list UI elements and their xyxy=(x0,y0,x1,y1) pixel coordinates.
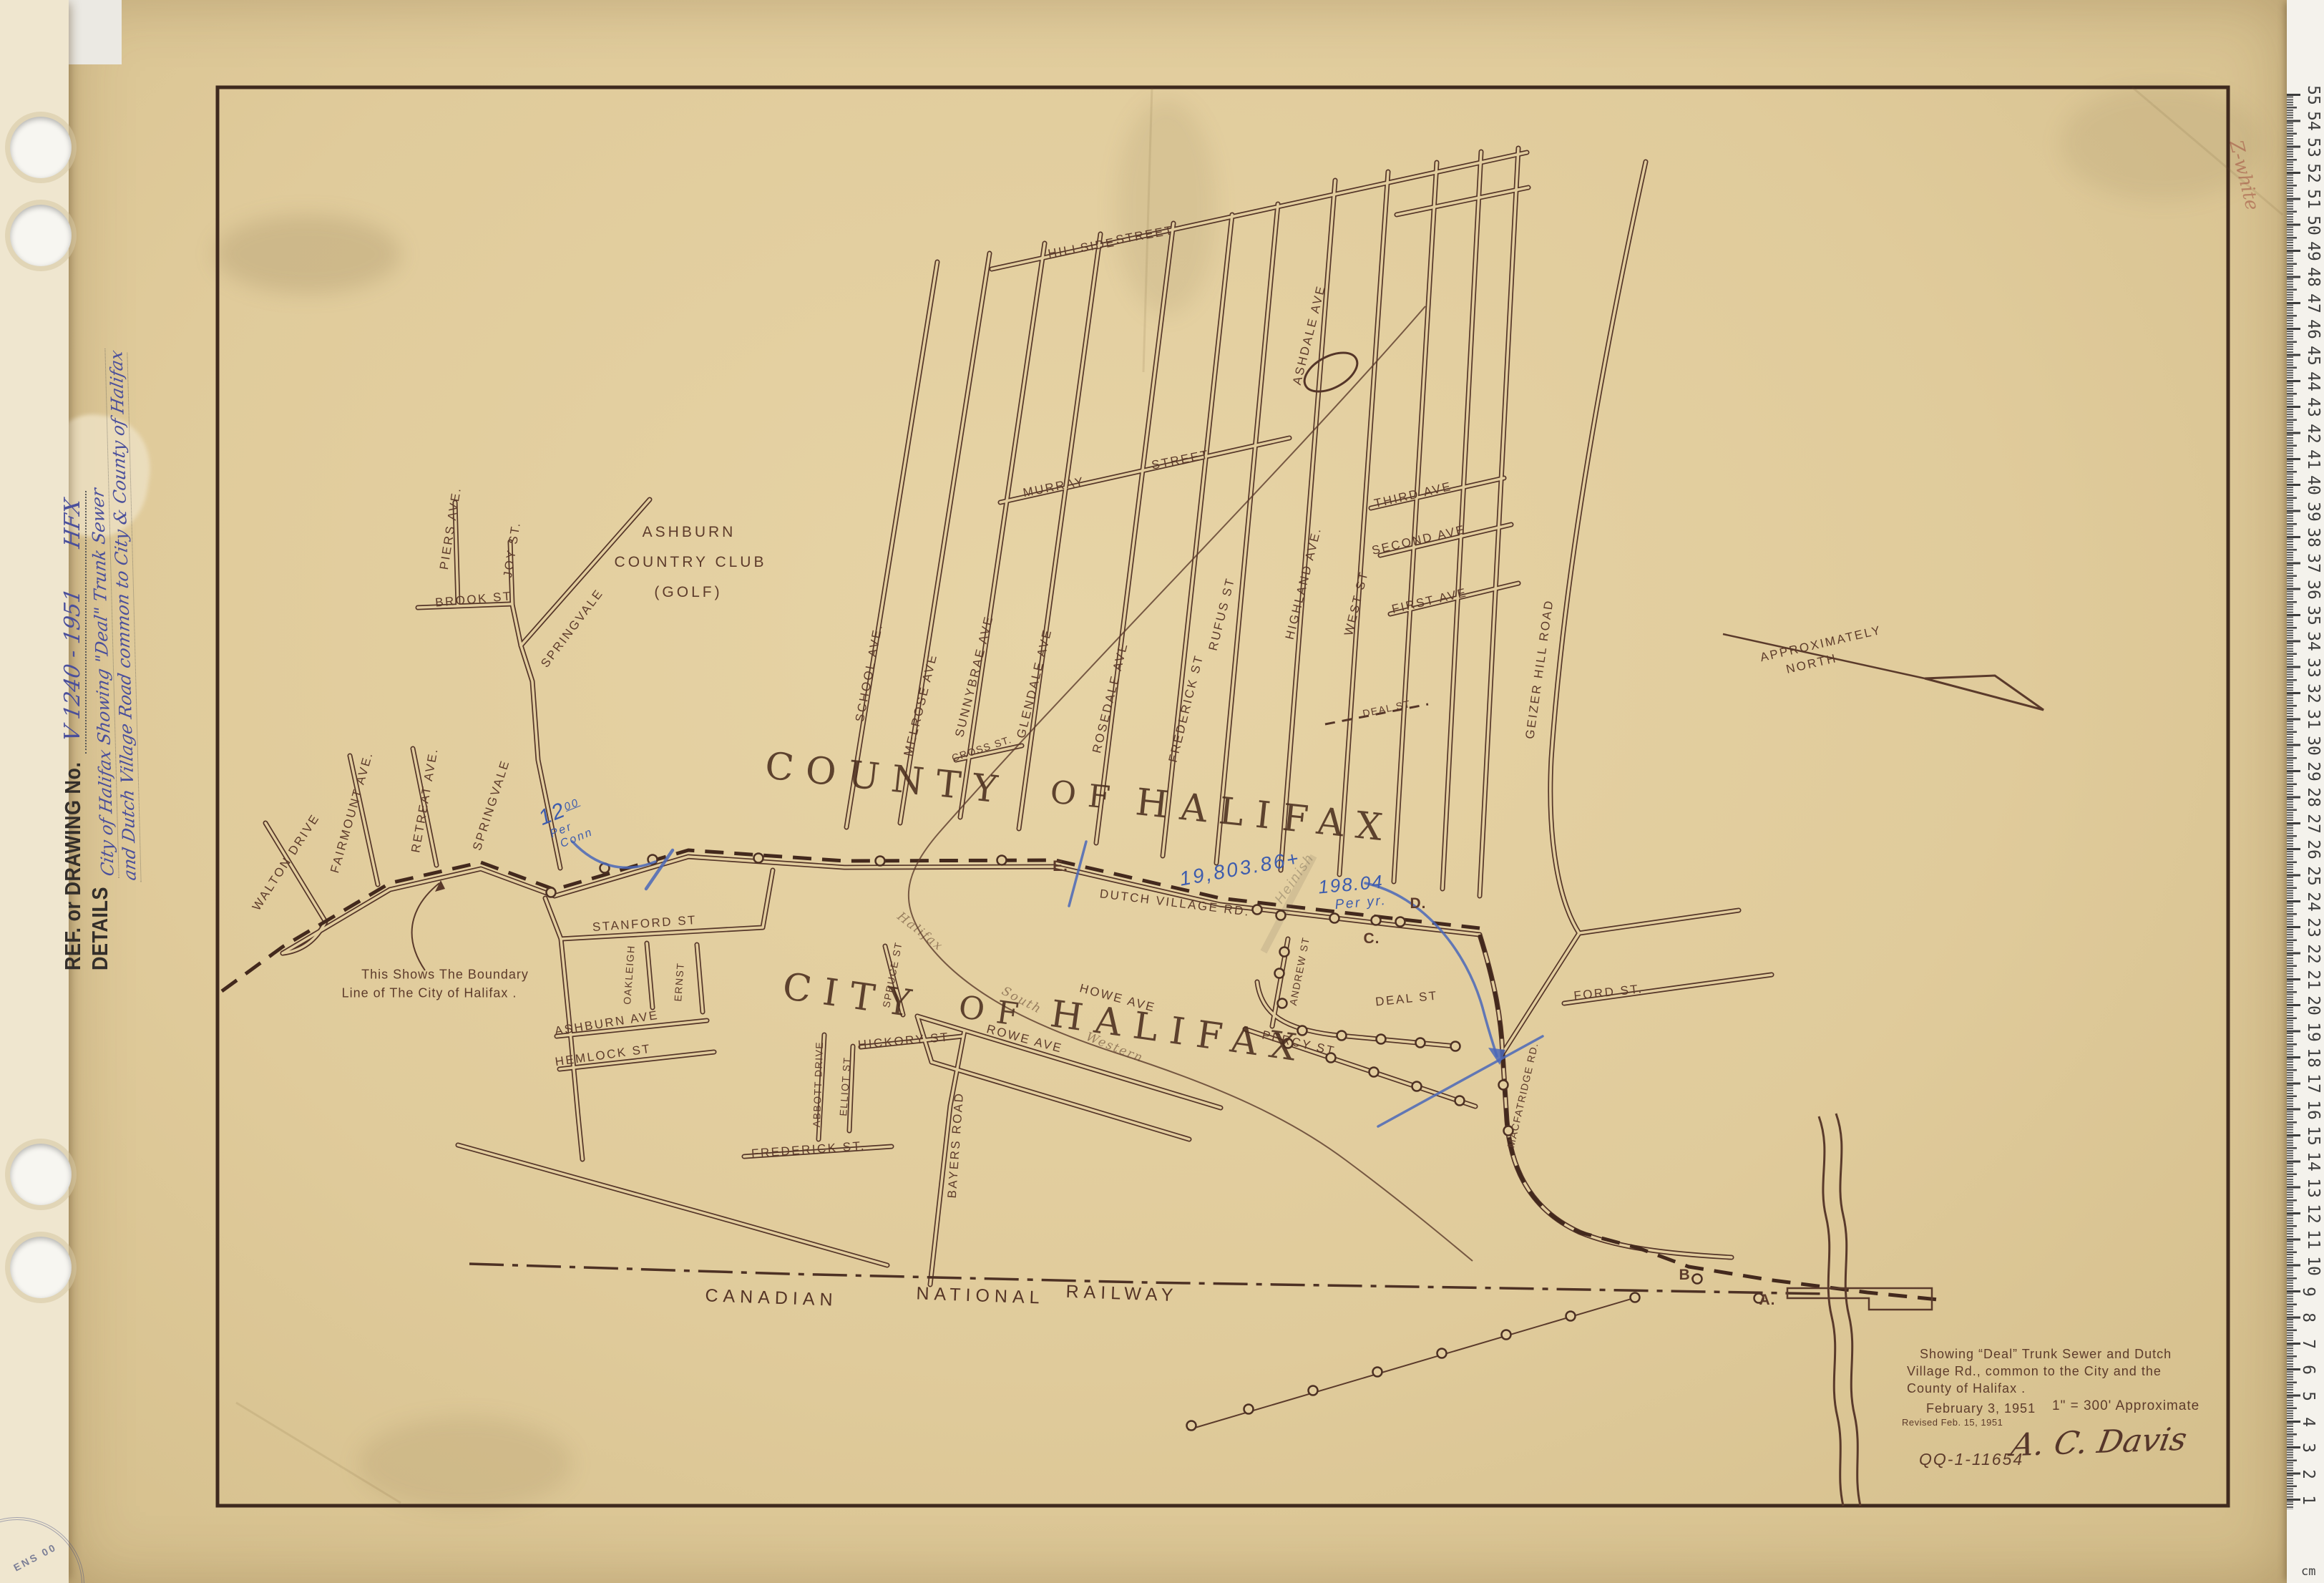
details-value: City of Halifax Showing "Deal" Trunk Sew… xyxy=(83,344,141,882)
ruler-number: 5 xyxy=(2299,1391,2318,1401)
ruler-number: 42 xyxy=(2304,424,2323,444)
road-geizer-hill xyxy=(1551,162,1646,933)
details-label: DETAILS xyxy=(88,887,113,970)
ruler-number: 13 xyxy=(2304,1178,2323,1198)
ruler-number: 16 xyxy=(2304,1100,2323,1120)
ruler-unit-label: cm xyxy=(2301,1564,2315,1579)
road-highland xyxy=(1281,180,1335,870)
ruler-number: 30 xyxy=(2304,736,2323,756)
ruler-number: 8 xyxy=(2299,1313,2318,1323)
golf-club-line1: ASHBURN xyxy=(643,524,736,541)
ruler-number: 33 xyxy=(2304,658,2323,678)
blue-per-conn-cents: 00 xyxy=(562,797,581,814)
title-block: Showing “Deal” Trunk Sewer and Dutch Vil… xyxy=(1907,1345,2172,1397)
road-rowe-ave xyxy=(932,1062,1189,1139)
point-label-d: D. xyxy=(1410,895,1427,912)
title-signature: A. C. Davis xyxy=(2008,1421,2190,1463)
ruler-number: 3 xyxy=(2299,1443,2318,1453)
blue-leader xyxy=(572,842,655,867)
ref-label: REF. or DRAWING No. xyxy=(61,762,86,971)
punch-hole xyxy=(10,205,72,266)
boundary-note-line2: Line of The City of Halifax . xyxy=(342,986,517,1001)
road-grid-12 xyxy=(1480,148,1518,896)
ruler-strip: cm 5554535251504948474645444342414039383… xyxy=(2287,0,2324,1583)
road-geizer-east xyxy=(1579,910,1739,933)
ruler-number: 17 xyxy=(2304,1073,2323,1094)
scanned-map-page: HILLSIDE STREET MURRAY STREET SCHOOL AVE… xyxy=(0,0,2324,1583)
details-row: DETAILS City of Halifax Showing "Deal" T… xyxy=(89,326,135,970)
trunk-sewer-dashed xyxy=(1480,935,1938,1300)
ruler-number: 29 xyxy=(2304,761,2323,781)
cn-railway-word2: NATIONAL xyxy=(916,1283,1045,1308)
point-label-b: B. xyxy=(1679,1267,1696,1284)
ruler-number: 22 xyxy=(2304,944,2323,964)
punch-hole xyxy=(10,117,72,178)
ruler-number: 50 xyxy=(2304,215,2323,235)
blue-arrow-curve xyxy=(1365,883,1497,1056)
road-school-ave xyxy=(846,262,937,827)
road-rufus xyxy=(1216,204,1278,863)
ruler-number: 52 xyxy=(2304,163,2323,183)
ruler-number: 18 xyxy=(2304,1048,2323,1068)
ruler-number: 39 xyxy=(2304,502,2323,522)
ruler-number: 12 xyxy=(2304,1204,2323,1224)
ruler-number: 4 xyxy=(2299,1417,2318,1427)
road-to-railway xyxy=(458,1145,887,1265)
ruler-number: 40 xyxy=(2304,475,2323,495)
ruler-number: 6 xyxy=(2299,1365,2318,1375)
ruler-number: 53 xyxy=(2304,137,2323,157)
boundary-note-line1: This Shows The Boundary xyxy=(361,968,529,983)
ruler-number: 28 xyxy=(2304,788,2323,808)
ruler-number: 46 xyxy=(2304,319,2323,339)
ruler-number: 35 xyxy=(2304,605,2323,625)
boundary-note-leader xyxy=(412,883,439,970)
road-ashdale xyxy=(1442,152,1481,889)
blue-ink-marks xyxy=(572,842,1543,1126)
golf-club-line3: (GOLF) xyxy=(654,584,722,601)
road-top-right-cross xyxy=(1397,187,1528,215)
ruler-number: 31 xyxy=(2304,710,2323,730)
manholes xyxy=(547,854,1764,1431)
road-rosedale xyxy=(1096,223,1173,843)
ruler-number: 23 xyxy=(2304,917,2323,937)
ruler-number: 51 xyxy=(2304,190,2323,210)
region-county-word2: OF xyxy=(1048,774,1123,817)
title-scale: 1" = 300' Approximate xyxy=(2052,1398,2199,1414)
ruler-number: 1 xyxy=(2299,1495,2318,1505)
title-file-number: QQ-1-11654 xyxy=(1919,1450,2023,1469)
ruler-number: 19 xyxy=(2304,1022,2323,1042)
road-macfatridge-diag xyxy=(1503,933,1579,1053)
ruler-number: 38 xyxy=(2304,527,2323,547)
ruler-number: 49 xyxy=(2304,241,2323,261)
ruler-number: 45 xyxy=(2304,346,2323,366)
ruler-number: 48 xyxy=(2304,268,2323,288)
cn-railway-word3: RAILWAY xyxy=(1065,1282,1178,1306)
binder-vertical-text: REF. or DRAWING No. V 1240 - 1951 HFX DE… xyxy=(60,326,135,970)
ref-value: V 1240 - 1951 HFX xyxy=(60,487,87,754)
punch-hole xyxy=(10,1144,72,1205)
ruler-number: 34 xyxy=(2304,631,2323,651)
ruler-number: 2 xyxy=(2299,1469,2318,1479)
point-label-c: C. xyxy=(1364,930,1380,948)
ruler-number: 26 xyxy=(2304,839,2323,859)
ruler-cm-ticks xyxy=(2287,94,2300,1509)
stream-west-bank xyxy=(1819,1116,1843,1506)
road-grid-10 xyxy=(1394,162,1437,882)
ruler-number: 43 xyxy=(2304,397,2323,417)
ruler-number: 10 xyxy=(2304,1256,2323,1276)
ruler-number: 55 xyxy=(2304,85,2323,105)
title-date: February 3, 1951 xyxy=(1926,1401,2036,1416)
title-revised: Revised Feb. 15, 1951 xyxy=(1902,1417,2003,1428)
ruler-number: 36 xyxy=(2304,580,2323,600)
title-line2: Village Rd., common to the City and the xyxy=(1907,1363,2172,1380)
ref-row: REF. or DRAWING No. V 1240 - 1951 HFX xyxy=(60,326,87,970)
ruler-number: 44 xyxy=(2304,371,2323,391)
road-west-st xyxy=(1339,172,1388,875)
ruler-number: 21 xyxy=(2304,970,2323,990)
ruler-number: 41 xyxy=(2304,449,2323,469)
ruler-number: 15 xyxy=(2304,1126,2323,1146)
ruler-number: 9 xyxy=(2299,1287,2318,1297)
road-springvale-upper xyxy=(521,500,650,646)
point-label-a: A. xyxy=(1759,1292,1776,1309)
ruler-number: 7 xyxy=(2299,1339,2318,1349)
point-label-e: E. xyxy=(1053,858,1068,875)
ruler-number: 27 xyxy=(2304,814,2323,834)
boundary-and-rail xyxy=(222,306,2044,1506)
ruler-number: 24 xyxy=(2304,892,2323,912)
ruler-number: 37 xyxy=(2304,553,2323,573)
ruler-number: 47 xyxy=(2304,293,2323,313)
road-geizer-hill xyxy=(1551,162,1646,933)
ruler-number: 14 xyxy=(2304,1151,2323,1172)
title-line3: County of Halifax . xyxy=(1907,1380,2172,1397)
golf-club-line2: COUNTRY CLUB xyxy=(615,554,767,571)
punch-hole xyxy=(10,1237,72,1298)
ruler-number: 25 xyxy=(2304,866,2323,886)
ruler-number: 11 xyxy=(2304,1230,2323,1250)
title-line1: Showing “Deal” Trunk Sewer and Dutch xyxy=(1920,1345,2172,1363)
ruler-number: 20 xyxy=(2304,995,2323,1015)
ruler-number: 54 xyxy=(2304,111,2323,131)
north-arrow-head-icon xyxy=(1925,676,2044,710)
ruler-number: 32 xyxy=(2304,683,2323,703)
